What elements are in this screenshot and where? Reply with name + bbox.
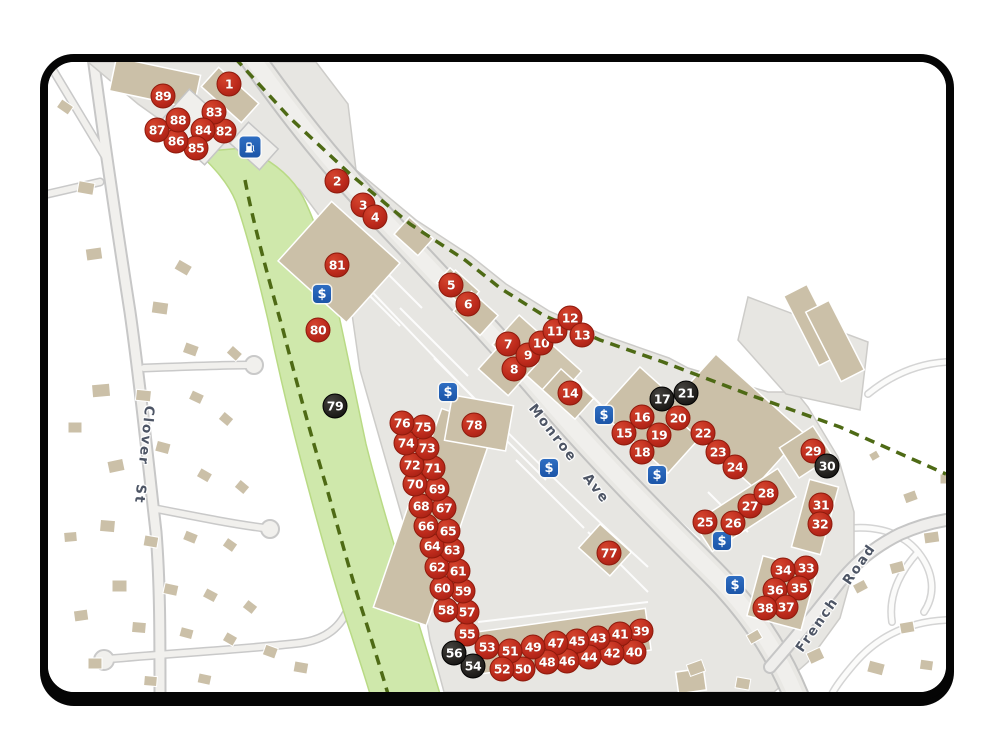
map-marker-73[interactable]: 73 <box>415 436 440 461</box>
map-marker-76[interactable]: 76 <box>390 411 415 436</box>
money-icon-7[interactable]: $ <box>726 576 744 594</box>
money-icon-4[interactable]: $ <box>540 459 558 477</box>
money-icon-5[interactable]: $ <box>648 466 666 484</box>
map-marker-77[interactable]: 77 <box>597 541 622 566</box>
map-marker-1[interactable]: 1 <box>217 72 242 97</box>
map-marker-78[interactable]: 78 <box>462 413 487 438</box>
map-marker-80[interactable]: 80 <box>306 318 331 343</box>
map-marker-81[interactable]: 81 <box>325 253 350 278</box>
map-marker-24[interactable]: 24 <box>723 455 748 480</box>
money-icon-2[interactable]: $ <box>439 383 457 401</box>
map-marker-52[interactable]: 52 <box>490 657 515 682</box>
map-marker-6[interactable]: 6 <box>456 292 481 317</box>
map-marker-58[interactable]: 58 <box>434 598 459 623</box>
map-canvas <box>48 62 946 692</box>
map-marker-38[interactable]: 38 <box>753 596 778 621</box>
map-marker-28[interactable]: 28 <box>754 481 779 506</box>
map-marker-25[interactable]: 25 <box>693 510 718 535</box>
map-marker-4[interactable]: 4 <box>363 205 388 230</box>
map-frame: Clover St Monroe Ave French Road $$$$$$$… <box>40 54 954 700</box>
map-inner: Clover St Monroe Ave French Road $$$$$$$… <box>48 62 946 692</box>
map-marker-69[interactable]: 69 <box>425 477 450 502</box>
map-marker-2[interactable]: 2 <box>325 169 350 194</box>
map-marker-79[interactable]: 79 <box>323 394 348 419</box>
map-marker-56[interactable]: 56 <box>442 641 467 666</box>
map-marker-13[interactable]: 13 <box>570 323 595 348</box>
fuel-pump-glyph <box>243 140 258 155</box>
map-marker-75[interactable]: 75 <box>411 415 436 440</box>
map-marker-21[interactable]: 21 <box>674 381 699 406</box>
money-icon-3[interactable]: $ <box>595 406 613 424</box>
map-marker-89[interactable]: 89 <box>151 84 176 109</box>
map-marker-20[interactable]: 20 <box>666 406 691 431</box>
map-marker-32[interactable]: 32 <box>808 512 833 537</box>
money-icon-1[interactable]: $ <box>313 285 331 303</box>
map-marker-30[interactable]: 30 <box>815 454 840 479</box>
map-marker-88[interactable]: 88 <box>166 108 191 133</box>
map-marker-14[interactable]: 14 <box>558 381 583 406</box>
map-marker-65[interactable]: 65 <box>436 519 461 544</box>
fuel-station-icon[interactable] <box>240 137 261 158</box>
